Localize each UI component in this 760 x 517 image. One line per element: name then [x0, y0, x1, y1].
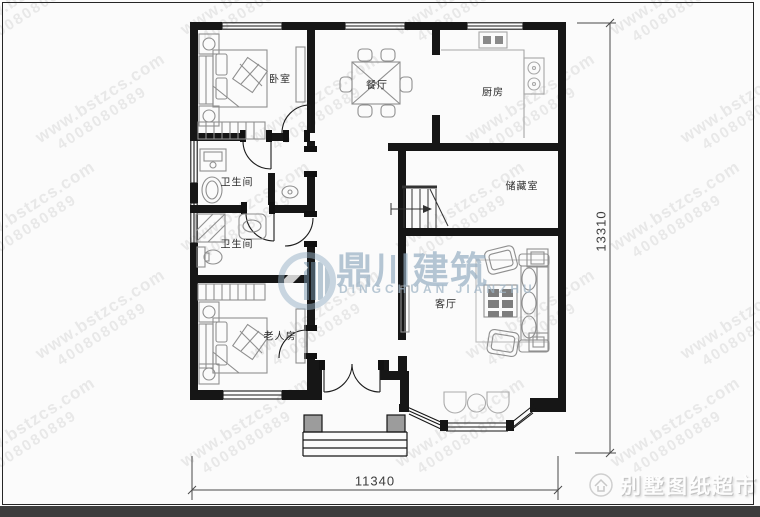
dimension-height: 13310	[594, 210, 609, 251]
brand-footer: 别墅图纸超市	[588, 470, 758, 500]
room-label-bathroom-lower: 卫生间	[221, 236, 254, 251]
brand-name: 别墅图纸超市	[620, 470, 758, 500]
dingchuan-logo-icon	[278, 252, 336, 310]
cabinet-bedroom	[296, 47, 305, 102]
cabinet-elder	[296, 309, 305, 363]
room-label-storage: 储藏室	[506, 178, 539, 193]
room-label-dining: 餐厅	[366, 77, 388, 92]
bay-window-seats	[444, 392, 509, 413]
footer-bar	[0, 506, 760, 517]
logo-name-en: DINGCHUAN JIANZHU	[339, 282, 536, 296]
bed-elder	[199, 302, 267, 384]
dingchuan-logo: 鼎川建筑 DINGCHUAN JIANZHU	[278, 244, 508, 310]
entry-porch	[303, 415, 407, 456]
house-badge-icon	[588, 472, 614, 498]
floorplan-page: www.bstzcs.com4008080889www.bstzcs.com40…	[0, 0, 760, 517]
bed-bedroom	[199, 34, 267, 126]
room-label-bedroom: 卧室	[269, 71, 291, 86]
room-label-bathroom-upper: 卫生间	[221, 174, 254, 189]
room-label-kitchen: 厨房	[482, 84, 504, 99]
wardrobe-elder	[198, 284, 265, 300]
dimension-width: 11340	[355, 474, 395, 489]
room-label-elder: 老人房	[264, 328, 297, 343]
